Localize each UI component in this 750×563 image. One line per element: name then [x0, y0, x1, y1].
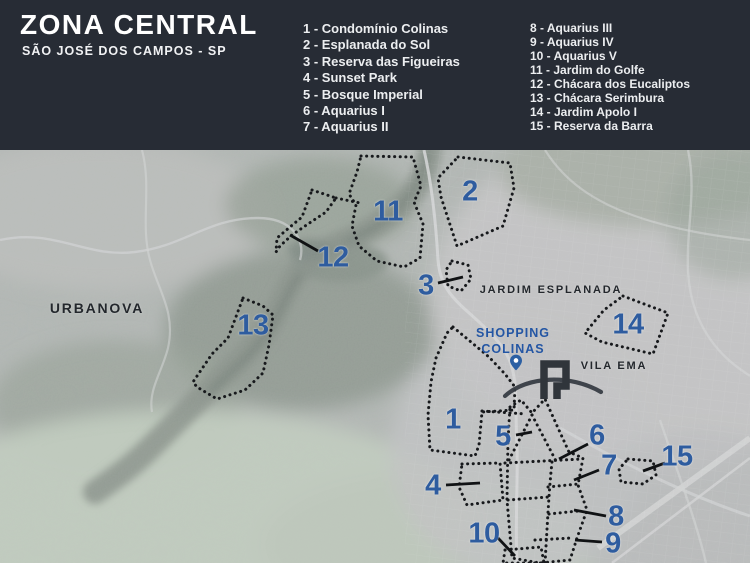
region-outline-1: [428, 327, 515, 456]
legend-item: 6 - Aquarius I: [303, 103, 460, 119]
map-infographic: 123456789101112131415 URBANOVAJARDIM ESP…: [0, 0, 750, 563]
region-link-12-11: [336, 198, 360, 203]
leader-line-3: [438, 277, 463, 283]
region-overlays: [0, 150, 750, 563]
legend-item: 12 - Chácara dos Eucaliptos: [530, 77, 690, 91]
leader-line-10: [498, 538, 515, 556]
page-subtitle: SÃO JOSÉ DOS CAMPOS - SP: [22, 44, 227, 58]
legend-item: 13 - Chácara Serimbura: [530, 91, 690, 105]
legend-item: 8 - Aquarius III: [530, 21, 690, 35]
legend-item: 2 - Esplanada do Sol: [303, 37, 460, 53]
legend-item: 9 - Aquarius IV: [530, 35, 690, 49]
leader-line-6: [559, 444, 588, 459]
map-area: [0, 150, 750, 563]
region-outline-3: [446, 261, 471, 291]
region-outline-15: [619, 459, 656, 484]
legend-item: 14 - Jardim Apolo I: [530, 105, 690, 119]
leader-line-5: [516, 432, 532, 435]
leader-line-12: [290, 235, 318, 251]
legend-item: 15 - Reserva da Barra: [530, 119, 690, 133]
legend-column-1: 1 - Condomínio Colinas2 - Esplanada do S…: [303, 21, 460, 136]
legend-item: 10 - Aquarius V: [530, 49, 690, 63]
region-outline-13: [193, 298, 273, 399]
cluster-internal-dividers: [482, 411, 582, 563]
leader-line-4: [446, 483, 480, 485]
leader-line-9: [575, 540, 602, 542]
region-outline-14: [585, 296, 668, 354]
page-title: ZONA CENTRAL: [20, 9, 258, 41]
legend-item: 11 - Jardim do Golfe: [530, 63, 690, 77]
region-outline-11: [349, 156, 423, 267]
legend-item: 4 - Sunset Park: [303, 70, 460, 86]
legend-column-2: 8 - Aquarius III9 - Aquarius IV10 - Aqua…: [530, 21, 690, 133]
leader-lines: [290, 235, 665, 556]
legend-item: 1 - Condomínio Colinas: [303, 21, 460, 37]
legend-item: 3 - Reserva das Figueiras: [303, 54, 460, 70]
leader-line-8: [574, 510, 606, 516]
leader-line-7: [574, 470, 599, 480]
legend-item: 7 - Aquarius II: [303, 119, 460, 135]
legend-item: 5 - Bosque Imperial: [303, 87, 460, 103]
header-panel: ZONA CENTRAL SÃO JOSÉ DOS CAMPOS - SP 1 …: [0, 0, 750, 150]
region-outline-2: [438, 157, 514, 246]
